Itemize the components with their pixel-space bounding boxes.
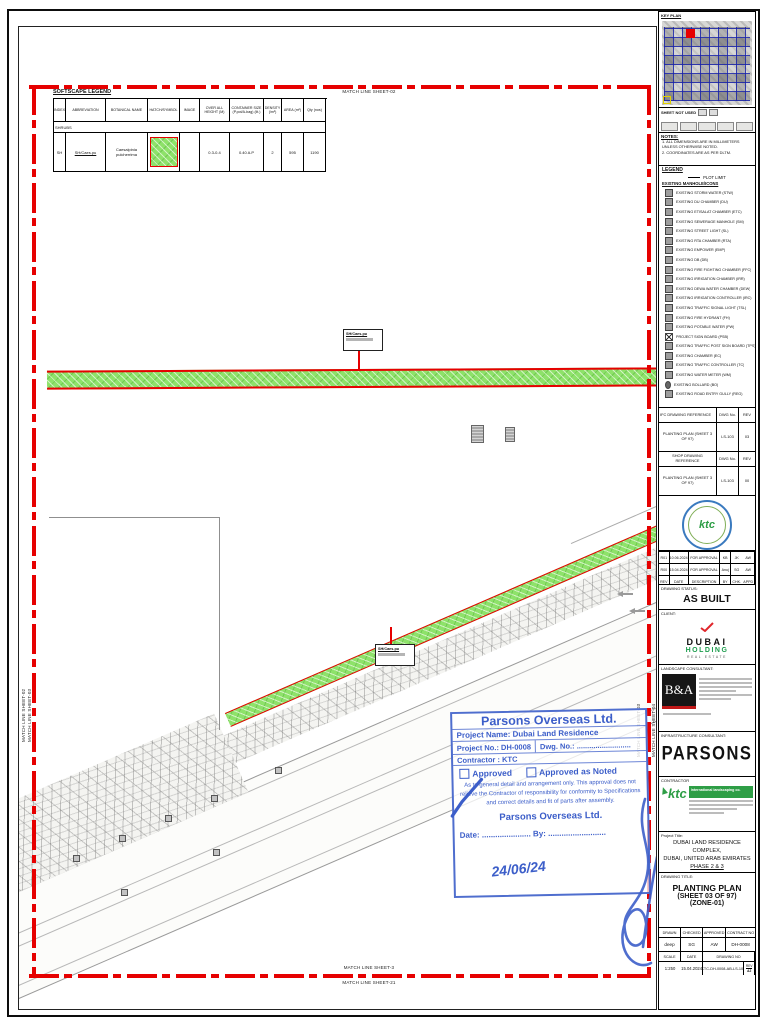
checkbox-approved-as-noted [526, 767, 536, 777]
manhole-icon [665, 361, 673, 369]
ktc-logo: ktc [661, 786, 687, 816]
rev-no: R00 [659, 563, 670, 575]
consultant-stamp-section: ktc [658, 495, 756, 551]
drawing-area: SH/Caes.pu SH/Caes.pu MATCH LINE SHEET-0… [18, 26, 657, 1010]
manhole-symbol [211, 795, 218, 802]
th-date: DATE [681, 952, 703, 962]
manhole-icon [665, 266, 673, 274]
td-drawn: deep [659, 938, 681, 952]
match-line-label-left-b: MATCH LINE SHEET-03 [27, 592, 32, 742]
parsons-logo: PARSONS [659, 744, 755, 766]
shop-rev-label: REV [739, 452, 755, 467]
shop-reference-section: SHOP DRAWING REFERENCE DWG No. REV PLANT… [658, 451, 756, 496]
shop-rev: 00 [739, 467, 755, 495]
legend-item: EXISTING TRAFFIC CONTROLLER (TC) [659, 361, 755, 371]
legend-item: EXISTING RTA CHAMBER (RTA) [659, 236, 755, 246]
group-row: SHRUBS [54, 122, 326, 133]
structure-block [471, 425, 484, 443]
manhole-icon [665, 371, 673, 379]
shop-dwg: LS-103 [717, 467, 739, 495]
legend-item-label: EXISTING DB (DB) [676, 258, 708, 262]
drawing-title-line1: PLANTING PLAN [659, 883, 755, 893]
rev-date: 15.04.2024 [670, 563, 689, 575]
legend-title: LEGEND [659, 166, 755, 174]
legend-item: EXISTING CHAMBER (EC) [659, 351, 755, 361]
legend-item-label: EXISTING IRRIGATION CHAMBER (IRR) [676, 277, 745, 281]
title-block-panel: KEY PLAN SHEET NOT USED NOTES: 1. ALL DI… [658, 12, 756, 1010]
landscape-consultant-label: LANDSCAPE CONSULTANT: [659, 665, 755, 672]
ktc-stamp-text: ktc [699, 519, 715, 531]
cell-height: 0.3-0.4 [200, 133, 230, 172]
mini-cell [717, 122, 734, 131]
shop-dwg-label: DWG No. [717, 452, 739, 467]
manhole-icon [665, 342, 673, 350]
dubai-holding-logo: DUBAI HOLDING REAL ESTATE [659, 619, 755, 659]
drawing-title-label: DRAWING TITLE: [659, 873, 755, 880]
match-line-label-left-a: MATCH LINE SHEET-02 [21, 592, 26, 742]
ifc-name: PLANTING PLAN (SHEET 3 OF 97) [659, 423, 717, 451]
softscape-legend-title: SOFTSCAPE LEGEND [53, 89, 327, 95]
stamp-dwg-no: Dwg. No.: .......................... [535, 738, 646, 752]
contractor-address [689, 800, 753, 814]
ktc-logo-text: ktc [668, 786, 687, 801]
manhole-icon [665, 390, 673, 398]
plant-label-text: SH/Caes.pu [378, 647, 412, 651]
td-scale: 1:250 [659, 962, 681, 975]
legend-item: EXISTING EMPOWER (EMP) [659, 246, 755, 256]
contractor-section: CONTRACTOR ktc International landscaping… [658, 776, 756, 832]
plot-boundary [49, 517, 220, 730]
manhole-icon [665, 314, 673, 322]
notes-list: 1. ALL DIMENSIONS ARE IN MILLIMETERS UNL… [659, 140, 755, 157]
legend-item: EXISTING IRRIGATION CONTROLLER (IRC) [659, 294, 755, 304]
plant-label: SH/Caes.pu [375, 644, 415, 666]
key-plan-grid [664, 27, 750, 101]
manhole-icon [665, 333, 673, 341]
td-contract: DH-0008 [726, 938, 755, 952]
td-checked: SG [681, 938, 703, 952]
legend-subtitle: EXISTING MANHOLE/ICONS [659, 181, 755, 188]
legend-item-label: EXISTING CHAMBER (EC) [676, 354, 721, 358]
col-header: IMAGE [180, 99, 200, 122]
th-drawing-no: DRAWING NO [703, 952, 755, 962]
manhole-icon [665, 246, 673, 254]
landscape-consultant-section: LANDSCAPE CONSULTANT: B&A [658, 664, 756, 732]
legend-item-label: EXISTING IRRIGATION CONTROLLER (IRC) [676, 296, 752, 300]
signoff-section: DRAWN CHECKED APPROVED CONTRACT NO deep … [658, 927, 756, 1010]
ifc-reference-section: IFC DRAWING REFERENCE DWG No. REV PLANTI… [658, 407, 756, 452]
th-contract: CONTRACT NO [726, 928, 755, 938]
legend-item: EXISTING DEWA WATER CHAMBER (DEW) [659, 284, 755, 294]
manhole-symbol [119, 835, 126, 842]
manhole-icon [665, 189, 673, 197]
manhole-symbol [73, 855, 80, 862]
match-line-bottom [29, 974, 649, 978]
th-approved: APPROVED [703, 928, 726, 938]
ifc-dwg-label: DWG No. [717, 408, 739, 423]
drawing-title-section: DRAWING TITLE: PLANTING PLAN (SHEET 03 O… [658, 872, 756, 928]
infrastructure-consultant-label: INFRASTRUCTURE CONSULTANT: [659, 732, 755, 739]
cell-hatch [148, 133, 180, 172]
rev-desc: FOR APPROVAL [689, 563, 721, 575]
rev-box: REV A2 [744, 962, 755, 975]
project-title-section: Project Title: DUBAI LAND RESIDENCE COMP… [658, 831, 756, 873]
client-name2: HOLDING [659, 647, 755, 654]
manhole-symbol [275, 767, 282, 774]
legend-list: EXISTING STORM WATER (STW) EXISTING DU C… [659, 188, 755, 399]
plot-limit-row: PLOT LIMIT [659, 174, 755, 181]
approved-as-noted-label: Approved as Noted [539, 765, 617, 777]
cell-image [180, 133, 200, 172]
legend-item: EXISTING ROAD ENTRY GULLY (REG) [659, 389, 755, 399]
project-title-line3: PHASE 2 & 3 [659, 863, 755, 871]
key-box [698, 109, 707, 116]
approved-label: Approved [472, 767, 512, 778]
key-box [709, 109, 718, 116]
key-plan-title: KEY PLAN [659, 12, 755, 19]
legend-item-label: EXISTING EMPOWER (EMP) [676, 248, 725, 252]
legend-item-label: EXISTING ETISALAT CHAMBER (ETC) [676, 210, 742, 214]
match-line-label-bottom-a: MATCH LINE SHEET-3 [259, 965, 479, 970]
stamp-handwritten-date: 24/06/24 [491, 858, 547, 880]
client-name: DUBAI [659, 637, 755, 647]
match-line-top [29, 85, 649, 89]
sheet-not-used-label: SHEET NOT USED [661, 110, 696, 115]
client-label: CLIENT: [659, 610, 755, 617]
legend-item: PROJECT SIGN BOARD (PSB) [659, 332, 755, 342]
td-date: 15.04.2024 [681, 962, 703, 975]
legend-item-label: EXISTING STREET LIGHT (SL) [676, 229, 729, 233]
legend-item-label: EXISTING POTABLE WATER (PW) [676, 325, 734, 329]
rev-date: 10.06.2024 [670, 551, 689, 563]
project-title-line2: DUBAI, UNITED ARAB EMIRATES [659, 855, 755, 863]
td-drawing-no: KTC-DH-0008-AB-LS-103 [703, 962, 744, 975]
legend-item: EXISTING IRRIGATION CHAMBER (IRR) [659, 274, 755, 284]
contractor-banner: International landscaping co. [689, 786, 753, 798]
th-checked: CHECKED [681, 928, 703, 938]
cell-botanical: Caesalpinia pulcherrima [106, 133, 148, 172]
revision-rows: R01 10.06.2024 FOR APPROVAL KB JK AW R00… [659, 551, 755, 585]
drawing-status-label: DRAWING STATUS: [659, 585, 755, 592]
manhole-icon [665, 304, 673, 312]
highlight-cell [663, 96, 671, 104]
legend-item-label: EXISTING ROAD ENTRY GULLY (REG) [676, 392, 743, 396]
manhole-icon [665, 218, 673, 226]
match-line-label-right-b: MATCH LINE SHEET-04 [651, 607, 656, 757]
cell-abbreviation: SH/Caes.pu [66, 133, 106, 172]
legend-item-label: EXISTING RTA CHAMBER (RTA) [676, 239, 731, 243]
legend-item: EXISTING DU CHAMBER (DU) [659, 198, 755, 208]
shop-name: PLANTING PLAN (SHEET 3 OF 97) [659, 467, 717, 495]
legend-item: EXISTING FIRE HYDRANT (FH) [659, 313, 755, 323]
sheet-not-used-row: SHEET NOT USED [659, 107, 755, 117]
drawing-status-section: DRAWING STATUS: AS BUILT [658, 584, 756, 610]
infrastructure-consultant-section: INFRASTRUCTURE CONSULTANT: PARSONS [658, 731, 756, 777]
cell-area: 595 [282, 133, 304, 172]
legend-item-label: EXISTING FIRE HYDRANT (FH) [676, 316, 730, 320]
legend-item: EXISTING STORM WATER (STW) [659, 188, 755, 198]
hatch-swatch [150, 137, 178, 167]
manhole-icon [665, 323, 673, 331]
legend-item: EXISTING SEWERAGE MANHOLE (SM) [659, 217, 755, 227]
notes-section: NOTES: 1. ALL DIMENSIONS ARE IN MILLIMET… [658, 132, 756, 166]
manhole-icon [665, 294, 673, 302]
legend-item: EXISTING ETISALAT CHAMBER (ETC) [659, 207, 755, 217]
project-title-label: Project Title: [659, 832, 755, 839]
client-tagline: REAL ESTATE [659, 655, 755, 659]
rev-appd: AW [742, 551, 754, 563]
manhole-icon [665, 237, 673, 245]
legend-item: EXISTING DB (DB) [659, 255, 755, 265]
rev-box-value: A2 [747, 969, 751, 973]
approved-as-noted-option: Approved as Noted [526, 765, 617, 777]
drawing-title-line2: (SHEET 03 OF 97) [659, 893, 755, 900]
checkbox-approved [459, 768, 469, 778]
key-mini-strip [659, 122, 755, 131]
rev-appd: AW [742, 563, 754, 575]
ifc-rev: 03 [739, 423, 755, 451]
approved-check-icon [450, 785, 485, 820]
approved-option: Approved [459, 767, 512, 778]
ifc-dwg: LS-103 [717, 423, 739, 451]
structure-block [505, 427, 515, 442]
legend-item: EXISTING BOLLARD (BO) [659, 380, 755, 390]
planting-strip-top [47, 367, 657, 389]
col-header: CONTAINER SIZE (P.pot/A-bag) (lit.) [230, 99, 264, 122]
rev-by: Anuj [720, 563, 731, 575]
legend-item-label: EXISTING WATER METER (WM) [676, 373, 731, 377]
shop-title: SHOP DRAWING REFERENCE [659, 452, 717, 467]
mini-cell [680, 122, 697, 131]
rev-chk: SG [731, 563, 743, 575]
mini-cell [736, 122, 753, 131]
legend-item-label: EXISTING TRAFFIC POST SIGN BOARD (TPS) [676, 344, 755, 348]
legend-item-label: EXISTING STORM WATER (STW) [676, 191, 733, 195]
client-section: CLIENT: DUBAI HOLDING REAL ESTATE [658, 609, 756, 665]
cell-density: 2 [264, 133, 282, 172]
legend-item: EXISTING WATER METER (WM) [659, 370, 755, 380]
note-item: 2. COORDINATES ARE AS PER DLTM. [659, 151, 755, 157]
th-scale: SCALE [659, 952, 681, 962]
address-text [699, 674, 752, 709]
road-edge-line [571, 296, 657, 544]
col-header: HATCH/SYMBOL [148, 99, 180, 122]
ifc-rev-label: REV [739, 408, 755, 423]
legend-item-label: EXISTING FIRE FIGHTING CHAMBER (FFC) [676, 268, 751, 272]
plant-label-detail [346, 338, 373, 341]
contractor-label: CONTRACTOR [659, 777, 755, 784]
ifc-title: IFC DRAWING REFERENCE [659, 408, 717, 423]
legend-item-label: EXISTING DEWA WATER CHAMBER (DEW) [676, 287, 750, 291]
leaf-icon [660, 786, 668, 795]
stamp-project-no: Project No.: DH-0008 [453, 740, 535, 754]
rev-desc: FOR APPROVAL [689, 551, 721, 563]
col-header: ABBREVIATION [66, 99, 106, 122]
legend-item: EXISTING STREET LIGHT (SL) [659, 226, 755, 236]
plot-limit-label: PLOT LIMIT [703, 175, 726, 180]
manhole-icon [665, 275, 673, 283]
plot-limit-line-icon [688, 177, 700, 178]
softscape-table: INDEX ABBREVIATION BOTANICAL NAME HATCH/… [53, 98, 327, 172]
td-approved: AW [703, 938, 726, 952]
manhole-symbol [121, 889, 128, 896]
cell-container: 0.40 A.P [230, 133, 264, 172]
key-plan-section: KEY PLAN SHEET NOT USED [658, 11, 756, 133]
ktc-round-stamp: ktc [682, 500, 732, 550]
road-arrow-icon [619, 593, 633, 595]
ba-logo: B&A [662, 674, 696, 709]
legend-item-label: EXISTING TRAFFIC CONTROLLER (TC) [676, 363, 744, 367]
manhole-icon [665, 198, 673, 206]
manhole-icon [665, 352, 673, 360]
legend-item-label: EXISTING TRAFFIC SIGNAL LIGHT (TSL) [676, 306, 746, 310]
drawing-sheet: SH/Caes.pu SH/Caes.pu MATCH LINE SHEET-0… [0, 0, 768, 1024]
legend-item: EXISTING FIRE FIGHTING CHAMBER (FFC) [659, 265, 755, 275]
match-line-label-bottom-b: MATCH LINE SHEET-21 [259, 980, 479, 985]
holding-check-icon [700, 622, 714, 632]
manhole-icon [665, 208, 673, 216]
col-header: BOTANICAL NAME [106, 99, 148, 122]
current-sheet-marker [686, 29, 695, 38]
rev-chk: JK [731, 551, 743, 563]
softscape-legend: SOFTSCAPE LEGEND INDEX ABBREVIATION BOTA… [53, 89, 327, 172]
key-plan-map [662, 21, 752, 105]
legend-item-label: EXISTING DU CHAMBER (DU) [676, 200, 728, 204]
plant-label: SH/Caes.pu [343, 329, 383, 351]
manhole-symbol [165, 815, 172, 822]
manhole-icon [665, 227, 673, 235]
legend-section: LEGEND PLOT LIMIT EXISTING MANHOLE/ICONS… [658, 165, 756, 408]
legend-item-label: EXISTING SEWERAGE MANHOLE (SM) [676, 220, 744, 224]
rev-no: R01 [659, 551, 670, 563]
drawing-status-value: AS BUILT [659, 593, 755, 605]
cell-qty: 1190 [304, 133, 326, 172]
project-title-line1: DUBAI LAND RESIDENCE COMPLEX, [659, 839, 755, 855]
revision-table: R01 10.06.2024 FOR APPROVAL KB JK AW R00… [658, 550, 756, 585]
mini-cell [661, 122, 678, 131]
plant-label-detail [378, 653, 405, 656]
col-header: INDEX [54, 99, 66, 122]
manhole-icon [665, 381, 671, 389]
col-header: OVER ALL HEIGHT (M) [200, 99, 230, 122]
col-header: DENSITY (/m²) [264, 99, 282, 122]
legend-item-label: PROJECT SIGN BOARD (PSB) [676, 335, 728, 339]
manhole-icon [665, 285, 673, 293]
manhole-icon [665, 256, 673, 264]
plant-label-text: SH/Caes.pu [346, 332, 380, 336]
signature [597, 797, 657, 972]
mini-cell [698, 122, 715, 131]
leader-line [358, 351, 360, 371]
legend-item: EXISTING TRAFFIC POST SIGN BOARD (TPS) [659, 342, 755, 352]
cell-index: SH [54, 133, 66, 172]
rev-by: KB [720, 551, 731, 563]
col-header: AREA (m²) [282, 99, 304, 122]
legend-item-label: EXISTING BOLLARD (BO) [674, 383, 718, 387]
manhole-symbol [213, 849, 220, 856]
leader-line [390, 627, 392, 645]
address-text-2 [659, 713, 755, 715]
th-drawn: DRAWN [659, 928, 681, 938]
match-line-left [32, 85, 36, 978]
legend-item: EXISTING POTABLE WATER (PW) [659, 322, 755, 332]
col-header: Qty (nos) [304, 99, 326, 122]
legend-item: EXISTING TRAFFIC SIGNAL LIGHT (TSL) [659, 303, 755, 313]
drawing-title-line3: (ZONE-01) [659, 900, 755, 907]
